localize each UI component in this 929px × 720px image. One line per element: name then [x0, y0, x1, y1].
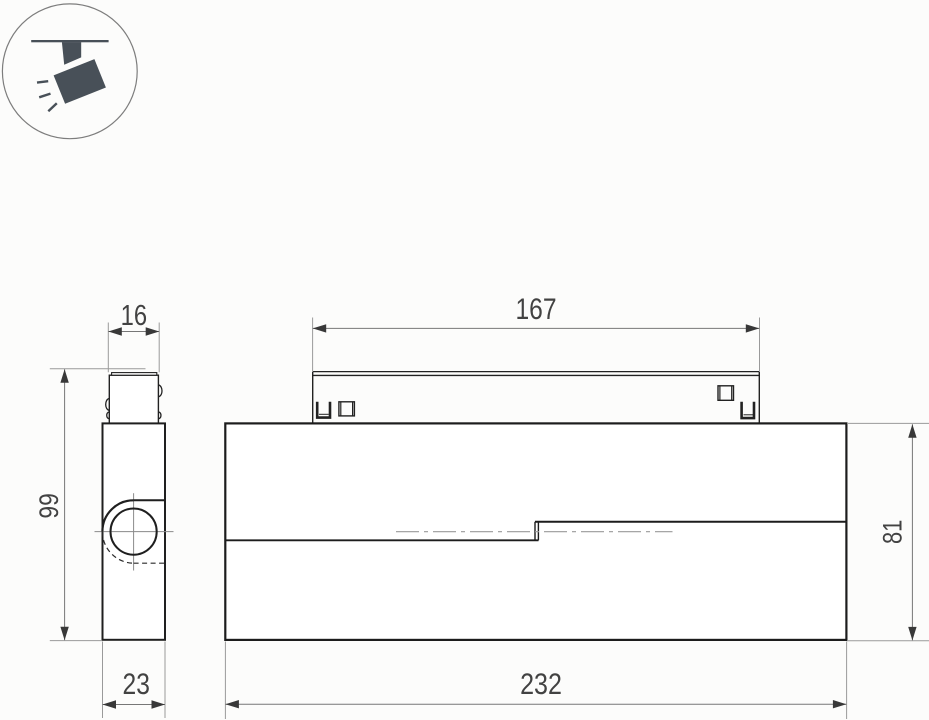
svg-text:16: 16: [121, 299, 147, 332]
svg-text:167: 167: [515, 292, 556, 326]
svg-text:23: 23: [123, 667, 150, 701]
svg-text:81: 81: [878, 520, 908, 544]
svg-text:232: 232: [520, 667, 562, 700]
svg-text:99: 99: [35, 493, 64, 518]
